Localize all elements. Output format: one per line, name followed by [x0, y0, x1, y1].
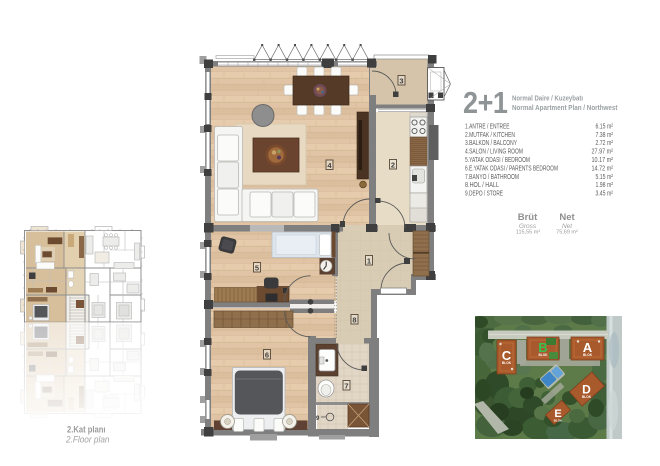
svg-text:3: 3: [399, 76, 403, 85]
svg-text:2.72 m²: 2.72 m²: [596, 140, 614, 147]
svg-text:Normal Apartment Plan / Northw: Normal Apartment Plan / Northwest: [512, 105, 618, 112]
svg-text:4.SALON / LIVING ROOM: 4.SALON / LIVING ROOM: [465, 149, 523, 156]
svg-text:5.YATAK ODASI / BEDROOM: 5.YATAK ODASI / BEDROOM: [465, 157, 530, 164]
svg-text:9.DEPO / STORE: 9.DEPO / STORE: [465, 191, 503, 198]
svg-text:1.98 m²: 1.98 m²: [596, 182, 614, 189]
svg-text:Net: Net: [559, 212, 575, 223]
svg-text:75,69 m²: 75,69 m²: [556, 230, 578, 236]
svg-text:3.BALKON / BALCONY: 3.BALKON / BALCONY: [465, 140, 517, 147]
svg-text:7.38 m²: 7.38 m²: [596, 132, 614, 139]
svg-text:14.72 m²: 14.72 m²: [592, 165, 614, 172]
svg-text:1: 1: [367, 256, 371, 265]
svg-text:115,55 m²: 115,55 m²: [516, 230, 541, 236]
svg-text:1.ANTRE / ENTREE: 1.ANTRE / ENTREE: [465, 123, 510, 130]
svg-text:2.MUTFAK / KITCHEN: 2.MUTFAK / KITCHEN: [465, 132, 515, 139]
svg-text:BLOK: BLOK: [538, 353, 548, 357]
svg-text:5.15 m²: 5.15 m²: [596, 174, 614, 181]
svg-text:BLOK: BLOK: [502, 361, 512, 365]
svg-text:8.HOL / HALL: 8.HOL / HALL: [465, 182, 499, 189]
svg-text:BLOK: BLOK: [583, 353, 593, 357]
svg-text:6.15 m²: 6.15 m²: [596, 123, 614, 130]
svg-text:8: 8: [352, 315, 356, 324]
svg-text:5: 5: [255, 263, 259, 272]
svg-text:BLOK: BLOK: [554, 419, 563, 423]
svg-text:2: 2: [391, 160, 395, 169]
svg-text:6.E.YATAK ODASI / PARENTS BEDR: 6.E.YATAK ODASI / PARENTS BEDROOM: [465, 165, 558, 172]
svg-text:10.17 m²: 10.17 m²: [592, 157, 614, 164]
svg-text:2.Floor plan: 2.Floor plan: [65, 435, 109, 445]
svg-text:Normal Daire / Kuzeybatı: Normal Daire / Kuzeybatı: [512, 96, 583, 103]
svg-text:6: 6: [265, 350, 269, 359]
svg-text:27.97 m²: 27.97 m²: [592, 149, 614, 156]
svg-text:BLOK: BLOK: [582, 395, 592, 399]
svg-text:7: 7: [344, 381, 348, 390]
svg-text:3.45 m²: 3.45 m²: [596, 191, 614, 198]
svg-text:7.BANYO / BATHROOM: 7.BANYO / BATHROOM: [465, 174, 519, 181]
svg-text:Brüt: Brüt: [518, 212, 538, 223]
svg-text:2.Kat planı: 2.Kat planı: [67, 425, 106, 435]
svg-text:2+1: 2+1: [463, 85, 508, 120]
